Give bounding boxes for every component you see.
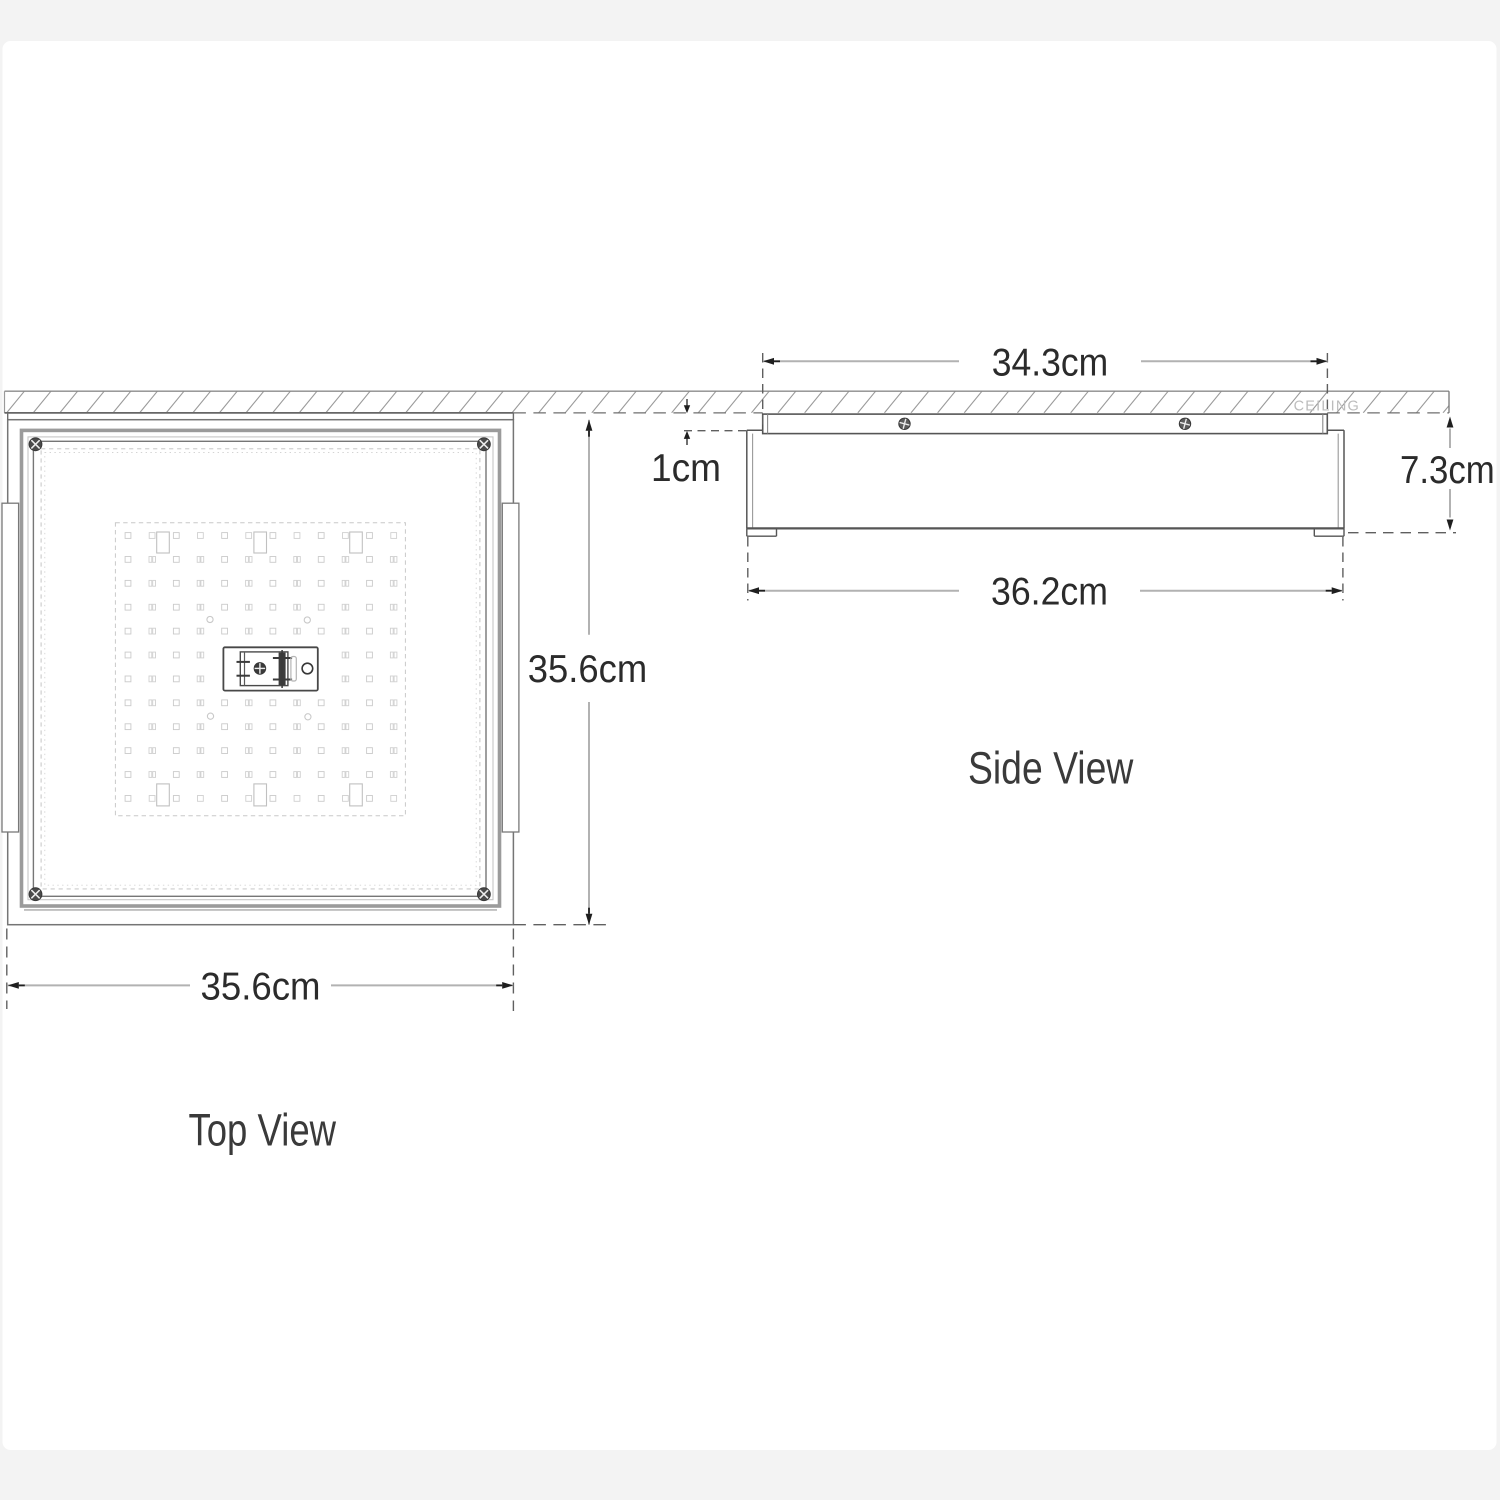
svg-text:Side View: Side View — [968, 742, 1133, 793]
svg-text:7.3cm: 7.3cm — [1400, 449, 1495, 492]
svg-text:35.6cm: 35.6cm — [528, 648, 647, 691]
svg-text:1cm: 1cm — [651, 447, 721, 490]
svg-text:34.3cm: 34.3cm — [992, 341, 1108, 384]
svg-text:Top View: Top View — [189, 1104, 337, 1155]
svg-text:36.2cm: 36.2cm — [991, 571, 1108, 614]
svg-text:35.6cm: 35.6cm — [201, 965, 321, 1008]
